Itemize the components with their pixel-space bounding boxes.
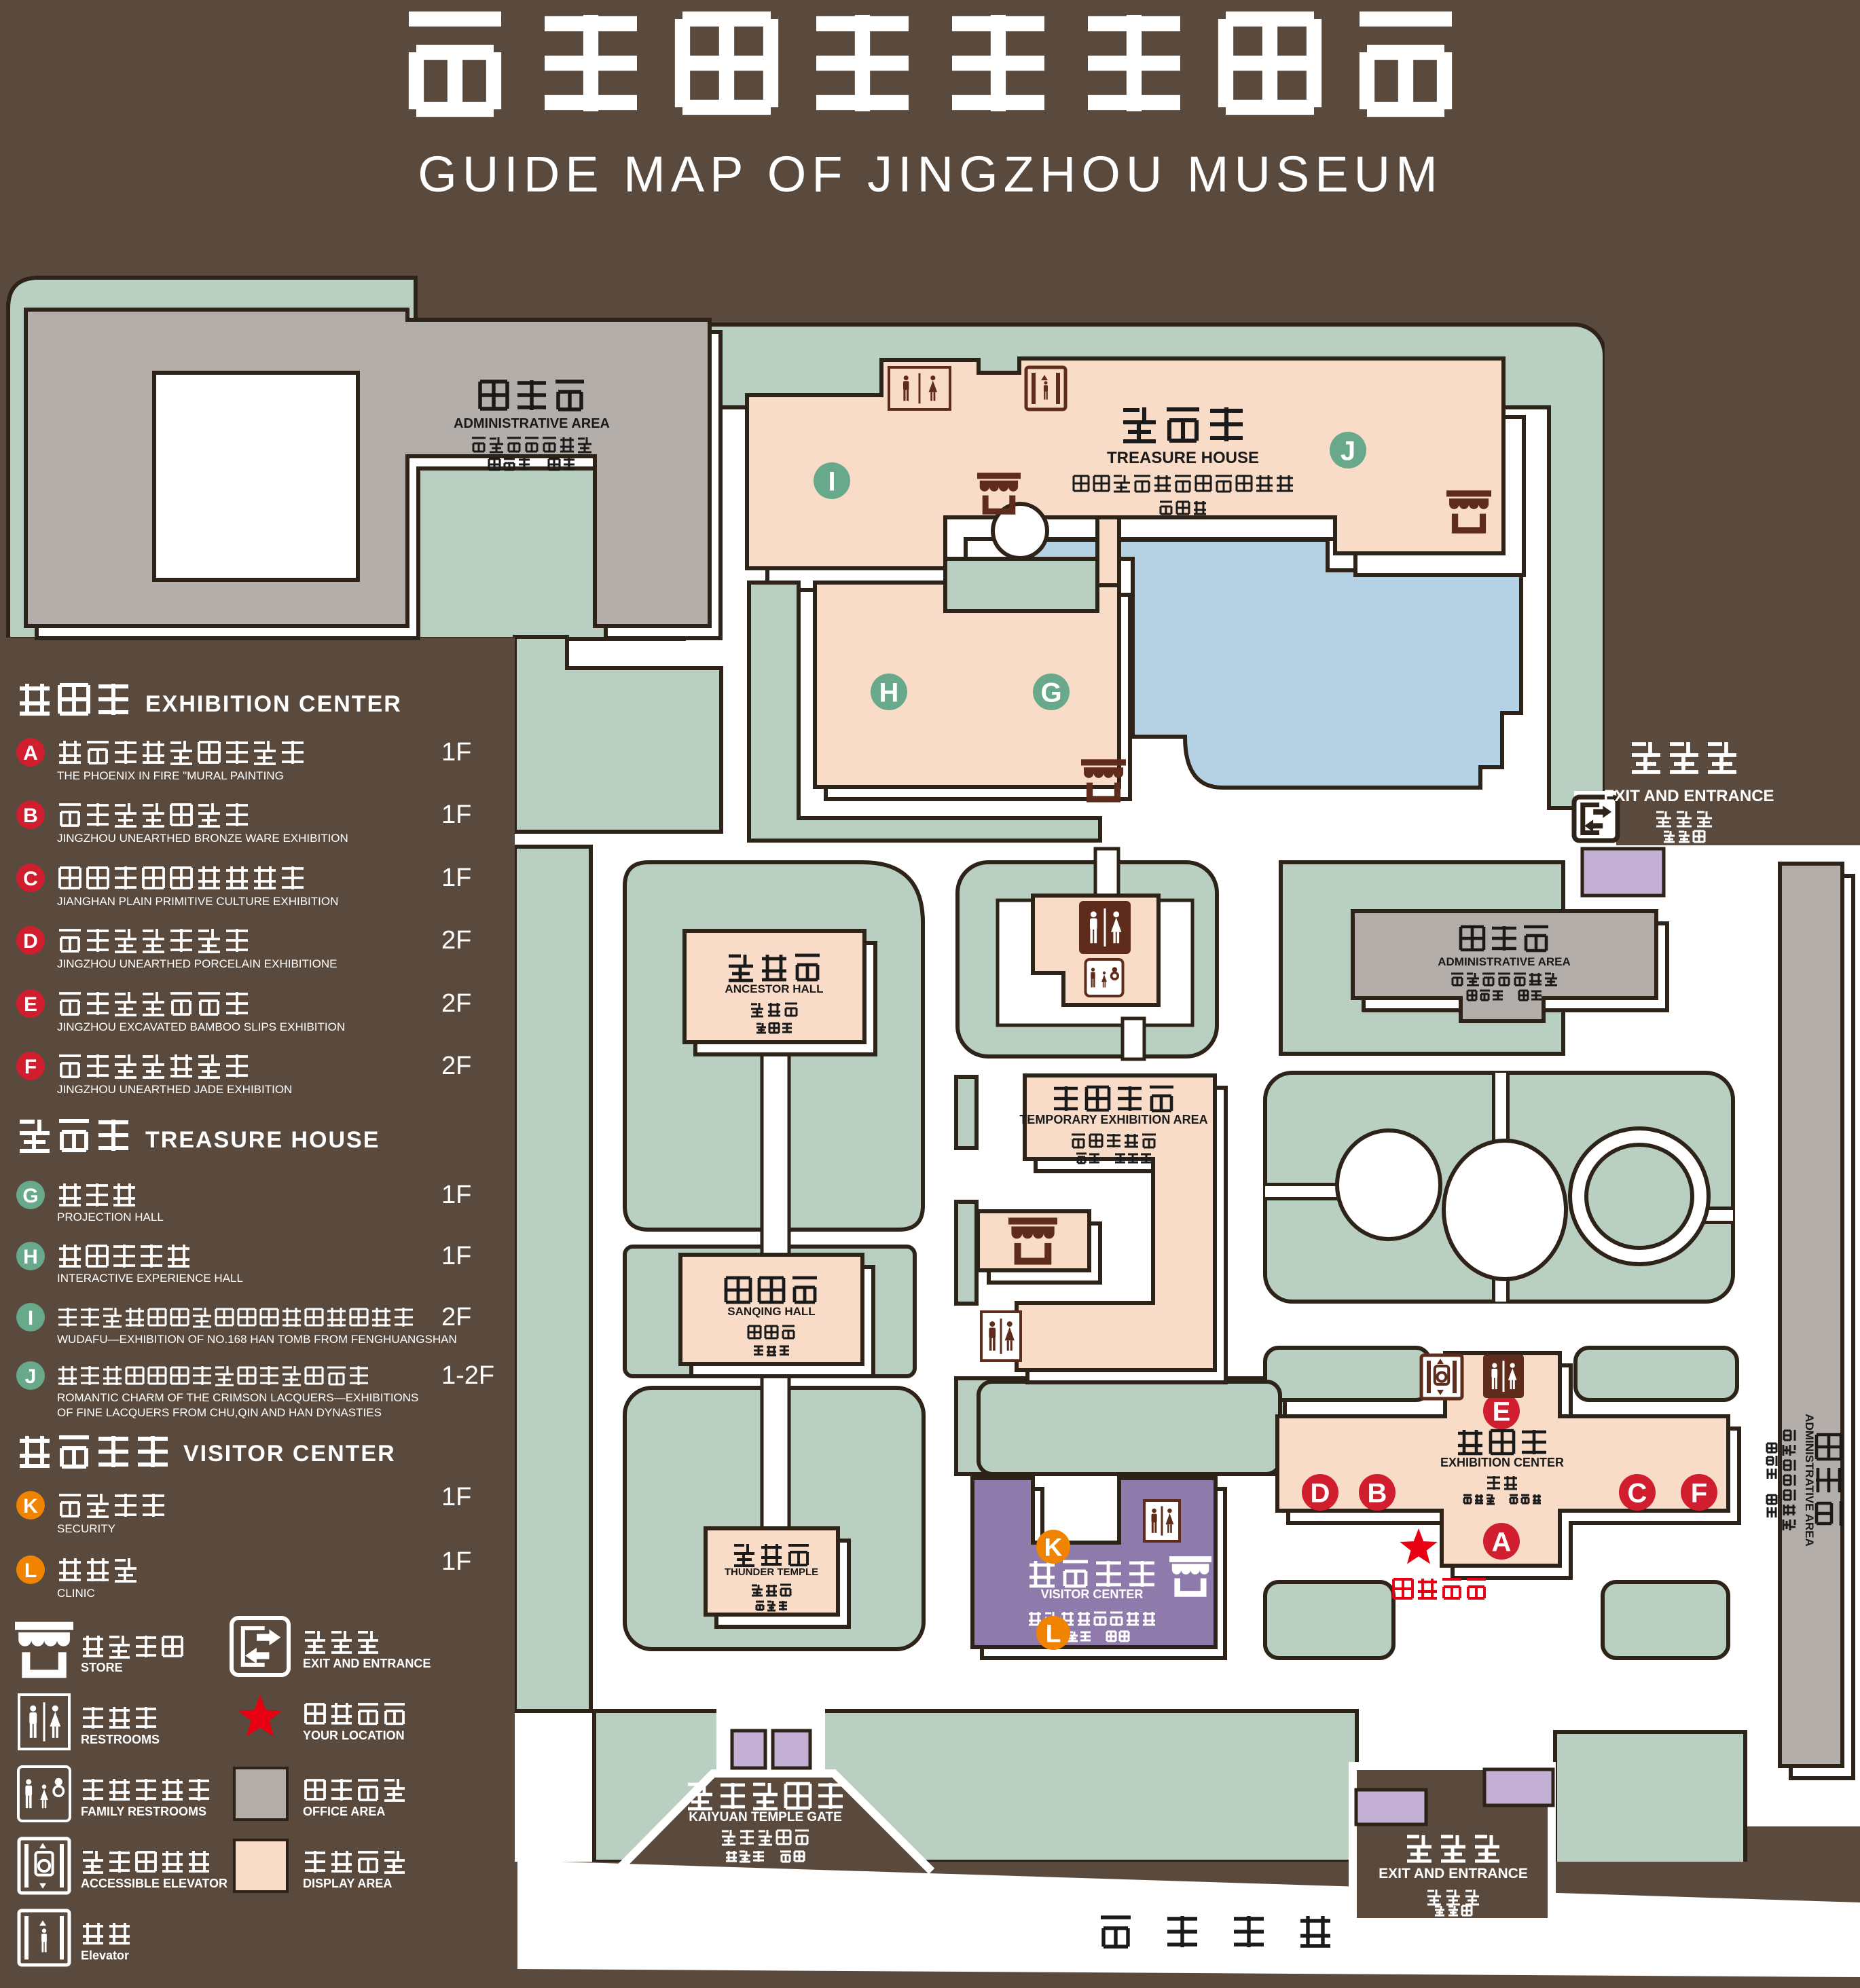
svg-text:EXHIBITION CENTER: EXHIBITION CENTER: [1440, 1456, 1564, 1469]
svg-text:KAIYUAN TEMPLE GATE: KAIYUAN TEMPLE GATE: [689, 1810, 842, 1824]
svg-text:2F: 2F: [441, 1303, 471, 1331]
svg-text:J: J: [25, 1365, 37, 1388]
svg-text:B: B: [1368, 1478, 1387, 1508]
svg-text:STORE: STORE: [81, 1661, 123, 1674]
svg-text:H: H: [23, 1246, 38, 1268]
svg-text:PROJECTION HALL: PROJECTION HALL: [57, 1211, 164, 1223]
svg-text:EXIT AND ENTRANCE: EXIT AND ENTRANCE: [303, 1657, 431, 1670]
svg-text:ACCESSIBLE ELEVATOR: ACCESSIBLE ELEVATOR: [81, 1877, 227, 1890]
svg-text:ADMINISTRATIVE AREA: ADMINISTRATIVE AREA: [1438, 955, 1571, 968]
svg-text:INTERACTIVE EXPERIENCE HALL: INTERACTIVE EXPERIENCE HALL: [57, 1272, 243, 1285]
svg-text:Elevator: Elevator: [81, 1949, 129, 1962]
svg-text:1F: 1F: [441, 1242, 471, 1270]
svg-text:ADMINISTRATIVE AREA: ADMINISTRATIVE AREA: [454, 416, 610, 431]
svg-text:J: J: [1341, 436, 1355, 466]
svg-text:DISPLAY AREA: DISPLAY AREA: [303, 1877, 392, 1890]
svg-text:THUNDER TEMPLE: THUNDER TEMPLE: [725, 1566, 818, 1578]
svg-text:1F: 1F: [441, 800, 471, 829]
svg-text:1F: 1F: [441, 1483, 471, 1511]
svg-text:CLINIC: CLINIC: [57, 1587, 95, 1600]
svg-text:1F: 1F: [441, 1547, 471, 1576]
svg-text:D: D: [23, 930, 38, 953]
svg-text:G: G: [22, 1185, 38, 1207]
svg-text:C: C: [1628, 1478, 1647, 1508]
svg-text:JINGZHOU UNEARTHED JADE EXHIBI: JINGZHOU UNEARTHED JADE EXHIBITION: [57, 1083, 292, 1096]
svg-text:TREASURE HOUSE: TREASURE HOUSE: [145, 1127, 380, 1153]
svg-text:EXIT AND ENTRANCE: EXIT AND ENTRANCE: [1603, 787, 1774, 805]
svg-text:OF FINE LACQUERS FROM CHU,QIN: OF FINE LACQUERS FROM CHU,QIN AND HAN DY…: [57, 1406, 382, 1419]
svg-text:G: G: [1040, 678, 1061, 707]
svg-text:VISITOR CENTER: VISITOR CENTER: [1041, 1587, 1144, 1601]
svg-text:L: L: [1046, 1619, 1061, 1647]
svg-text:2F: 2F: [441, 926, 471, 955]
svg-text:JINGZHOU UNEARTHED PORCELAIN E: JINGZHOU UNEARTHED PORCELAIN EXHIBITIONE: [57, 957, 337, 970]
svg-text:RESTROOMS: RESTROOMS: [81, 1733, 160, 1746]
svg-text:GUIDE MAP OF JINGZHOU MUSEUM: GUIDE MAP OF JINGZHOU MUSEUM: [418, 146, 1442, 202]
svg-text:TEMPORARY EXHIBITION AREA: TEMPORARY EXHIBITION AREA: [1019, 1113, 1207, 1126]
svg-text:SECURITY: SECURITY: [57, 1522, 115, 1535]
svg-text:1F: 1F: [441, 864, 471, 892]
svg-text:JINGZHOU EXCAVATED BAMBOO SLIP: JINGZHOU EXCAVATED BAMBOO SLIPS EXHIBITI…: [57, 1020, 345, 1033]
svg-text:L: L: [24, 1560, 37, 1582]
svg-text:A: A: [1492, 1527, 1512, 1557]
svg-text:K: K: [23, 1495, 38, 1517]
svg-text:2F: 2F: [441, 989, 471, 1018]
svg-text:ROMANTIC CHARM OF THE CRIMSON: ROMANTIC CHARM OF THE CRIMSON LACQUERS—E…: [57, 1391, 418, 1404]
svg-text:1-2F: 1-2F: [441, 1361, 494, 1390]
svg-text:A: A: [23, 742, 38, 765]
svg-text:2F: 2F: [441, 1052, 471, 1080]
svg-text:E: E: [1493, 1397, 1511, 1426]
svg-text:WUDAFU—EXHIBITION OF NO.168 HA: WUDAFU—EXHIBITION OF NO.168 HAN TOMB FRO…: [57, 1333, 457, 1346]
svg-text:JINGZHOU UNEARTHED BRONZE WARE: JINGZHOU UNEARTHED BRONZE WARE EXHIBITIO…: [57, 832, 348, 845]
svg-text:YOUR LOCATION: YOUR LOCATION: [303, 1729, 405, 1742]
svg-text:OFFICE AREA: OFFICE AREA: [303, 1805, 385, 1818]
svg-text:K: K: [1044, 1533, 1063, 1561]
svg-text:1F: 1F: [441, 1181, 471, 1209]
svg-text:THE PHOENIX IN FIRE "MURAL PAI: THE PHOENIX IN FIRE "MURAL PAINTING: [57, 769, 284, 782]
svg-text:I: I: [28, 1307, 33, 1329]
svg-text:1F: 1F: [441, 738, 471, 767]
svg-text:VISITOR CENTER: VISITOR CENTER: [183, 1441, 396, 1467]
svg-text:EXIT AND ENTRANCE: EXIT AND ENTRANCE: [1379, 1866, 1528, 1881]
svg-text:B: B: [23, 805, 38, 827]
svg-text:F: F: [24, 1056, 37, 1078]
svg-text:EXHIBITION CENTER: EXHIBITION CENTER: [145, 691, 402, 717]
svg-text:ANCESTOR HALL: ANCESTOR HALL: [725, 982, 823, 995]
svg-text:H: H: [879, 678, 899, 707]
svg-text:E: E: [24, 993, 37, 1016]
svg-text:C: C: [23, 868, 38, 890]
svg-text:D: D: [1311, 1478, 1330, 1508]
svg-text:FAMILY RESTROOMS: FAMILY RESTROOMS: [81, 1805, 206, 1818]
svg-text:F: F: [1691, 1478, 1707, 1508]
svg-text:ADMINISTRATIVE AREA: ADMINISTRATIVE AREA: [1803, 1414, 1816, 1547]
svg-text:I: I: [828, 466, 835, 496]
svg-text:JIANGHAN PLAIN PRIMITIVE CULTU: JIANGHAN PLAIN PRIMITIVE CULTURE EXHIBIT…: [57, 895, 338, 908]
svg-text:TREASURE HOUSE: TREASURE HOUSE: [1107, 449, 1259, 467]
svg-text:SANQING HALL: SANQING HALL: [727, 1305, 815, 1318]
